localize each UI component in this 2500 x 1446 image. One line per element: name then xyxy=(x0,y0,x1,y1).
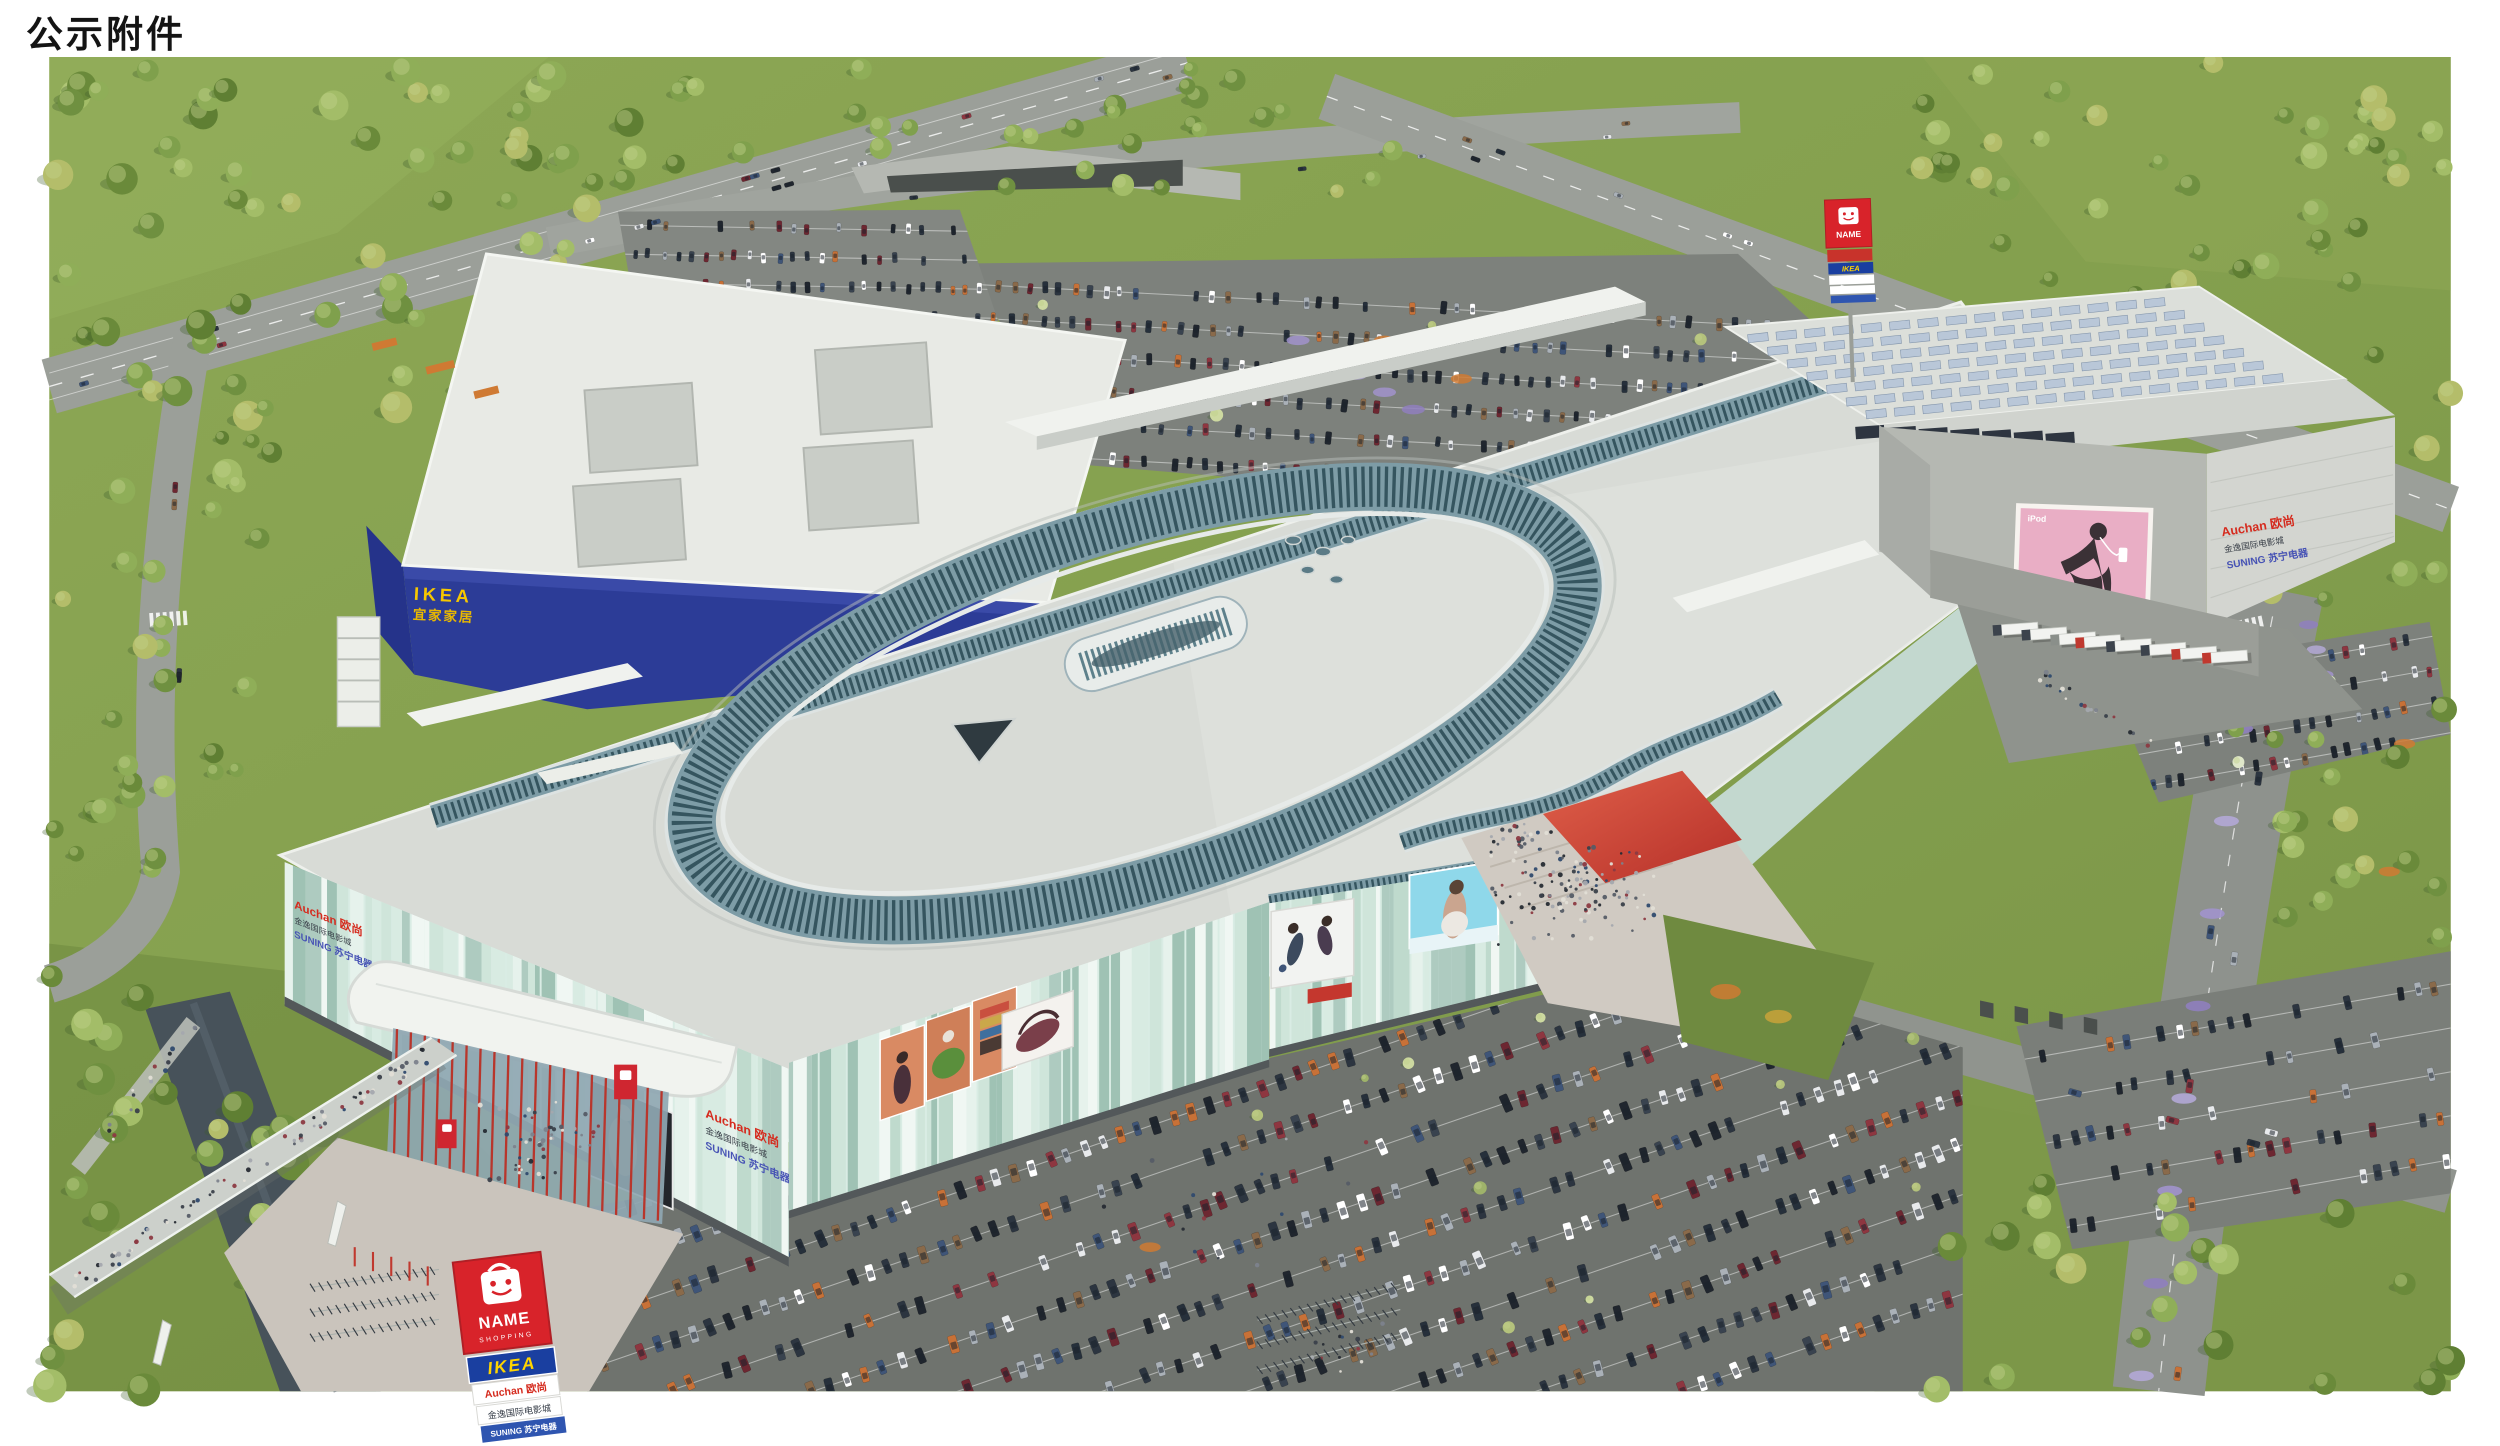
car xyxy=(633,250,638,259)
car xyxy=(1543,409,1550,422)
person xyxy=(1580,878,1583,881)
person xyxy=(1500,900,1504,904)
car xyxy=(805,282,811,293)
solar-panel xyxy=(1929,345,1950,355)
person xyxy=(166,1060,171,1065)
car xyxy=(906,223,912,234)
car xyxy=(1133,288,1138,299)
person xyxy=(78,1271,81,1274)
person xyxy=(113,1251,116,1254)
solar-panel xyxy=(2025,366,2046,376)
solar-panel xyxy=(2164,310,2185,320)
person xyxy=(216,1179,219,1182)
person xyxy=(1566,895,1569,898)
person xyxy=(72,1284,77,1289)
person xyxy=(566,1100,569,1103)
person xyxy=(1509,895,1512,898)
person xyxy=(1536,831,1540,835)
ikea-stair-tower xyxy=(337,617,379,727)
car xyxy=(704,252,709,262)
person xyxy=(246,1167,251,1172)
person xyxy=(1529,873,1533,877)
person xyxy=(1643,894,1646,897)
person xyxy=(2094,708,2098,712)
car xyxy=(1497,407,1503,418)
person xyxy=(1620,852,1623,855)
person xyxy=(1558,905,1563,910)
car xyxy=(1333,297,1339,309)
person xyxy=(1587,846,1591,850)
person xyxy=(299,1134,303,1138)
car xyxy=(2293,719,2301,733)
person xyxy=(2146,744,2150,748)
car xyxy=(2309,717,2316,729)
person xyxy=(1575,877,1579,881)
car xyxy=(1041,316,1047,327)
car xyxy=(1257,292,1262,302)
solar-panel xyxy=(1996,368,2017,378)
solar-panel xyxy=(2064,391,2085,401)
person xyxy=(514,1168,517,1171)
person xyxy=(1579,918,1583,922)
person xyxy=(1539,894,1544,899)
car xyxy=(663,251,667,260)
person xyxy=(559,1125,563,1129)
person xyxy=(588,1144,591,1147)
person xyxy=(1565,901,1568,904)
pylon-ikea: IKEA xyxy=(1842,264,1860,274)
person xyxy=(1202,1216,1206,1220)
person xyxy=(1651,906,1655,910)
solar-panel xyxy=(2195,351,2216,361)
person xyxy=(359,1092,362,1095)
car xyxy=(1310,434,1315,444)
car xyxy=(1123,456,1129,468)
solar-panel xyxy=(1776,330,1797,340)
person xyxy=(497,1106,502,1111)
person xyxy=(1280,1212,1284,1216)
car xyxy=(1667,383,1673,394)
person xyxy=(1628,851,1631,854)
person xyxy=(424,1061,429,1066)
solar-panel xyxy=(2147,341,2168,351)
car xyxy=(906,284,911,294)
car xyxy=(1226,326,1231,336)
car xyxy=(1326,398,1332,410)
person xyxy=(537,1172,541,1176)
person xyxy=(313,1125,316,1128)
person xyxy=(1551,870,1555,874)
car xyxy=(1294,429,1299,440)
person xyxy=(1612,893,1616,897)
car xyxy=(791,224,797,234)
car xyxy=(1192,325,1199,338)
car xyxy=(172,482,178,493)
person xyxy=(1618,896,1621,899)
solar-panel xyxy=(1974,313,1995,323)
solar-panel xyxy=(1844,353,1865,363)
car xyxy=(718,221,724,232)
person xyxy=(1490,887,1494,891)
person xyxy=(1584,908,1587,911)
person xyxy=(544,1127,549,1132)
car xyxy=(1103,286,1110,299)
person xyxy=(518,1165,521,1168)
person xyxy=(1625,896,1628,899)
person xyxy=(1500,827,1504,831)
person xyxy=(1594,900,1598,904)
solar-panel xyxy=(2101,373,2122,383)
car xyxy=(1451,406,1457,418)
car xyxy=(1317,332,1322,342)
person xyxy=(1575,888,1578,891)
solar-panel xyxy=(2214,363,2235,373)
person xyxy=(541,1155,545,1159)
person xyxy=(1582,862,1587,867)
person xyxy=(541,1138,546,1143)
person xyxy=(575,1131,578,1134)
lavender-strip xyxy=(2129,1371,2154,1382)
car xyxy=(1622,381,1628,393)
solar-panel xyxy=(1979,399,2000,409)
person xyxy=(592,1135,595,1138)
car xyxy=(2426,667,2432,678)
car xyxy=(1190,358,1196,370)
car xyxy=(1202,458,1208,470)
person xyxy=(1523,842,1527,846)
person xyxy=(1489,854,1493,858)
person xyxy=(550,1126,553,1129)
car xyxy=(861,281,866,291)
lavender-strip xyxy=(1373,387,1396,397)
person xyxy=(1568,879,1571,882)
car xyxy=(1364,331,1370,342)
ikea-wall-sign: IKEA 宜家家居 xyxy=(412,583,475,625)
car xyxy=(1683,350,1690,362)
person xyxy=(1511,858,1515,862)
person xyxy=(1346,1181,1350,1185)
solar-panel xyxy=(1852,338,1873,348)
lavender-strip xyxy=(2299,620,2318,629)
person xyxy=(1549,830,1553,834)
person xyxy=(505,1132,509,1136)
car xyxy=(2116,1082,2123,1095)
person xyxy=(1591,845,1596,850)
person xyxy=(1595,884,1598,887)
person xyxy=(542,1147,546,1151)
car xyxy=(1654,346,1660,358)
person xyxy=(1586,871,1589,874)
person xyxy=(1586,903,1591,908)
person xyxy=(1520,905,1524,909)
car xyxy=(645,248,651,258)
person xyxy=(1523,831,1526,834)
car xyxy=(1440,301,1447,315)
person xyxy=(1492,840,1496,844)
person xyxy=(579,1145,582,1148)
person xyxy=(1193,1250,1197,1254)
car xyxy=(677,252,682,261)
person xyxy=(166,1221,169,1224)
car xyxy=(1732,351,1737,361)
car xyxy=(1560,341,1567,354)
person xyxy=(1583,880,1588,885)
person xyxy=(170,1046,175,1051)
solar-panel xyxy=(2042,335,2063,345)
solar-panel xyxy=(2186,366,2207,376)
car xyxy=(1013,282,1018,293)
solar-panel xyxy=(1900,348,1921,358)
person xyxy=(1531,906,1536,911)
person xyxy=(554,1171,557,1174)
person xyxy=(1524,860,1527,863)
person xyxy=(403,1071,406,1074)
person xyxy=(354,1096,357,1099)
person xyxy=(1380,1321,1385,1326)
car xyxy=(1235,424,1242,437)
person xyxy=(111,1262,115,1266)
car xyxy=(791,282,796,293)
car xyxy=(962,255,967,264)
solar-panel xyxy=(1881,335,1902,345)
car xyxy=(820,283,825,292)
car xyxy=(2158,1116,2166,1131)
person xyxy=(193,1026,198,1031)
solar-panel xyxy=(1951,401,1972,411)
car xyxy=(805,251,810,261)
person xyxy=(1573,866,1576,869)
car xyxy=(877,256,882,265)
solar-panel xyxy=(2144,298,2165,308)
solar-panel xyxy=(2206,379,2227,389)
person xyxy=(1574,860,1578,864)
solar-panel xyxy=(1894,406,1915,416)
solar-panel xyxy=(1977,356,1998,366)
solar-panel xyxy=(2177,381,2198,391)
car xyxy=(1606,345,1612,358)
person xyxy=(283,1134,287,1138)
person xyxy=(1181,1227,1184,1230)
person xyxy=(1546,902,1550,906)
car xyxy=(1208,290,1215,303)
lavender-strip xyxy=(1287,336,1310,346)
solar-panel xyxy=(1866,409,1887,419)
solar-panel xyxy=(1994,325,2015,335)
orange-planting xyxy=(1140,1242,1161,1252)
person xyxy=(2048,684,2052,688)
car xyxy=(1116,321,1122,332)
solar-panel xyxy=(2223,348,2244,358)
person xyxy=(2149,739,2152,742)
car xyxy=(1283,394,1288,405)
solar-panel xyxy=(1892,363,1913,373)
person xyxy=(265,1162,269,1166)
car xyxy=(1603,135,1612,140)
person xyxy=(366,1090,370,1094)
car xyxy=(1454,303,1459,313)
person xyxy=(1635,851,1639,855)
car xyxy=(761,253,767,264)
person xyxy=(520,1138,523,1141)
person xyxy=(1322,1343,1325,1346)
aerial-rendering: IKEA 宜家家居 xyxy=(0,57,2500,1446)
solar-panel xyxy=(1918,318,1939,328)
person xyxy=(99,1263,103,1267)
car xyxy=(1698,349,1704,362)
car xyxy=(1073,284,1079,296)
solar-panel xyxy=(2136,313,2157,323)
solar-panel xyxy=(1874,393,1895,403)
car xyxy=(777,221,782,232)
solar-panel xyxy=(1922,404,1943,414)
person xyxy=(340,1105,344,1109)
person xyxy=(1544,831,1548,835)
car xyxy=(1448,440,1453,450)
car xyxy=(1161,321,1167,332)
car xyxy=(832,251,837,262)
solar-panel xyxy=(2184,323,2205,333)
solar-panel xyxy=(2110,358,2131,368)
person xyxy=(293,1139,296,1142)
person xyxy=(496,1176,501,1181)
solar-panel xyxy=(1804,328,1825,338)
person xyxy=(1548,873,1552,877)
person xyxy=(518,1156,521,1159)
person xyxy=(135,1108,140,1113)
car xyxy=(963,285,968,295)
lavender-strip xyxy=(2214,816,2239,827)
car xyxy=(1652,380,1657,391)
solar-panel xyxy=(2081,361,2102,371)
person xyxy=(551,1111,554,1114)
person xyxy=(1508,829,1512,833)
car xyxy=(1055,317,1060,328)
solar-panel xyxy=(1748,332,1769,342)
person xyxy=(591,1130,595,1134)
person xyxy=(163,1068,168,1073)
car xyxy=(1409,303,1415,315)
person xyxy=(2044,670,2049,675)
person xyxy=(1531,911,1534,914)
person xyxy=(533,1111,537,1115)
car xyxy=(1042,281,1048,293)
car xyxy=(1304,297,1310,309)
car xyxy=(1085,318,1091,330)
person xyxy=(168,1052,172,1056)
person xyxy=(1569,893,1574,898)
person xyxy=(404,1061,408,1065)
person xyxy=(300,1138,304,1142)
person xyxy=(478,1103,483,1108)
person xyxy=(1621,862,1624,865)
solar-panel xyxy=(2129,371,2150,381)
lavender-strip xyxy=(2143,1278,2168,1289)
person xyxy=(112,1133,116,1137)
car xyxy=(2253,759,2260,771)
person xyxy=(1350,1330,1353,1333)
person xyxy=(359,1101,363,1105)
solar-panel xyxy=(1846,396,1867,406)
solar-panel xyxy=(2090,346,2111,356)
car xyxy=(1146,353,1152,365)
person xyxy=(1260,1173,1263,1176)
person xyxy=(1521,872,1524,875)
person xyxy=(518,1171,521,1174)
person xyxy=(388,1067,392,1071)
lavender-strip xyxy=(1402,405,1425,415)
car xyxy=(1636,379,1643,392)
car xyxy=(1589,410,1596,422)
person xyxy=(1547,933,1550,936)
person xyxy=(107,1129,111,1133)
car xyxy=(951,286,955,295)
person xyxy=(377,1075,382,1080)
person xyxy=(130,1108,133,1111)
person xyxy=(1594,889,1599,894)
car xyxy=(919,225,924,235)
person xyxy=(1501,837,1505,841)
person xyxy=(370,1090,375,1095)
ipod-label: iPod xyxy=(2027,513,2046,524)
solar-panel xyxy=(2062,348,2083,358)
person xyxy=(1601,873,1604,876)
person xyxy=(1523,823,1526,826)
person xyxy=(1496,843,1499,846)
car xyxy=(1482,372,1489,385)
solar-panel xyxy=(1903,391,1924,401)
person xyxy=(524,1140,527,1143)
pylon-mall-name: NAME xyxy=(1836,229,1862,240)
car xyxy=(1223,358,1229,370)
person xyxy=(1584,891,1587,894)
person xyxy=(523,1114,526,1117)
solar-panel xyxy=(2022,323,2043,333)
car xyxy=(977,283,982,294)
person xyxy=(243,1179,246,1182)
page-header: 公示附件 xyxy=(0,0,2500,57)
person xyxy=(1551,905,1555,909)
person xyxy=(362,1094,367,1099)
car xyxy=(2369,1122,2377,1137)
ikea-logo-cn: 宜家家居 xyxy=(412,606,474,625)
person xyxy=(1532,936,1536,940)
solar-panel xyxy=(1796,343,1817,353)
person xyxy=(1589,936,1594,941)
person xyxy=(525,1172,528,1175)
car xyxy=(1559,375,1566,387)
solar-panel xyxy=(2003,310,2024,320)
car xyxy=(891,224,896,233)
person xyxy=(597,1124,600,1127)
solar-panel xyxy=(2166,353,2187,363)
car xyxy=(909,195,918,200)
car xyxy=(1117,286,1122,296)
car xyxy=(991,312,996,321)
person xyxy=(1524,871,1527,874)
car xyxy=(778,253,784,263)
solar-panel xyxy=(2118,343,2139,353)
person xyxy=(1646,904,1650,908)
car xyxy=(1435,371,1442,384)
car xyxy=(663,221,668,230)
person xyxy=(1530,838,1534,842)
person xyxy=(223,1179,226,1182)
car xyxy=(2356,712,2362,723)
person xyxy=(1255,1263,1259,1267)
person xyxy=(1526,835,1529,838)
solar-panel xyxy=(2243,361,2264,371)
person xyxy=(530,1132,534,1136)
